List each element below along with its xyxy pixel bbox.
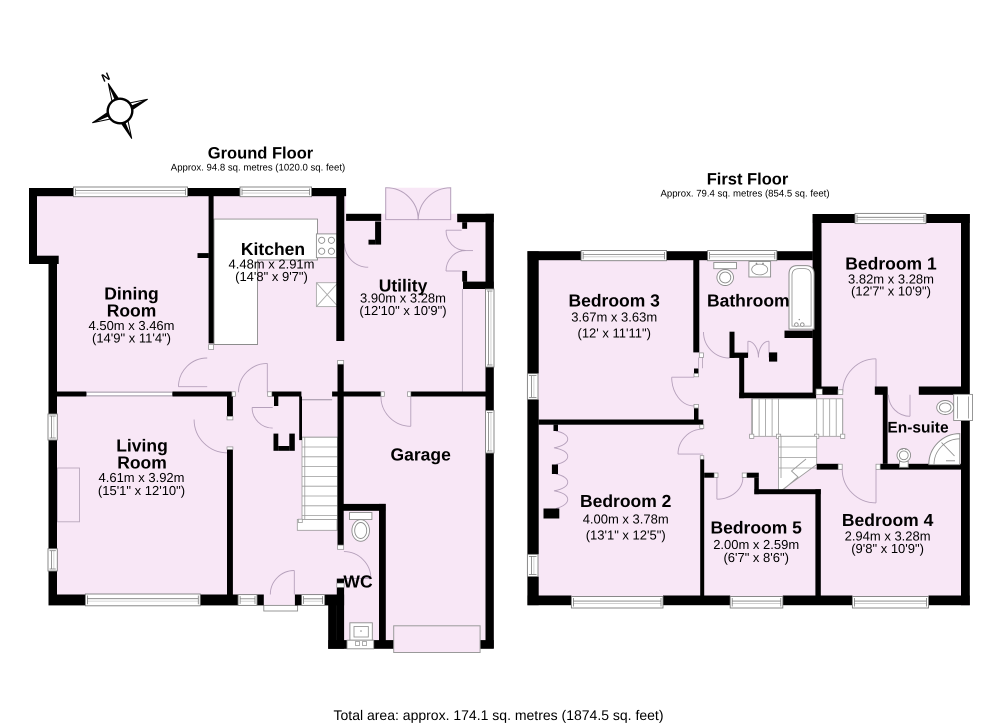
svg-text:Garage: Garage bbox=[391, 445, 452, 465]
svg-text:(15'1" x 12'10"): (15'1" x 12'10") bbox=[98, 483, 185, 498]
svg-text:En-suite: En-suite bbox=[887, 420, 949, 437]
svg-text:Bedroom 4: Bedroom 4 bbox=[842, 510, 934, 530]
svg-text:(12'10" x 10'9"): (12'10" x 10'9") bbox=[359, 303, 446, 318]
svg-text:(13'1" x 12'5"): (13'1" x 12'5") bbox=[586, 527, 666, 542]
svg-text:Bedroom 3: Bedroom 3 bbox=[568, 291, 660, 311]
svg-text:(9'8" x 10'9"): (9'8" x 10'9") bbox=[851, 541, 924, 556]
svg-text:3.67m x 3.63m: 3.67m x 3.63m bbox=[571, 309, 657, 324]
svg-text:Approx. 94.8 sq. metres (1020.: Approx. 94.8 sq. metres (1020.0 sq. feet… bbox=[171, 163, 345, 174]
svg-text:Bedroom 5: Bedroom 5 bbox=[710, 517, 802, 537]
svg-text:Total area: approx. 174.1 sq.: Total area: approx. 174.1 sq. metres (18… bbox=[334, 707, 664, 723]
svg-text:(12'7" x 10'9"): (12'7" x 10'9") bbox=[851, 284, 931, 299]
svg-text:(6'7" x 8'6"): (6'7" x 8'6") bbox=[723, 550, 789, 565]
svg-text:Approx. 79.4 sq. metres (854.5: Approx. 79.4 sq. metres (854.5 sq. feet) bbox=[660, 189, 829, 200]
svg-text:(14'9" x 11'4"): (14'9" x 11'4") bbox=[92, 330, 171, 345]
svg-text:Ground Floor: Ground Floor bbox=[208, 145, 314, 163]
svg-text:(14'8" x 9'7"): (14'8" x 9'7") bbox=[235, 269, 308, 284]
svg-text:Bathroom: Bathroom bbox=[707, 291, 790, 311]
svg-text:(12' x 11'11"): (12' x 11'11") bbox=[577, 325, 650, 340]
svg-text:First Floor: First Floor bbox=[707, 171, 789, 189]
svg-text:Bedroom 2: Bedroom 2 bbox=[580, 491, 672, 511]
svg-text:Bedroom 1: Bedroom 1 bbox=[845, 254, 937, 274]
svg-text:4.00m x 3.78m: 4.00m x 3.78m bbox=[583, 511, 669, 526]
svg-text:WC: WC bbox=[343, 572, 373, 592]
